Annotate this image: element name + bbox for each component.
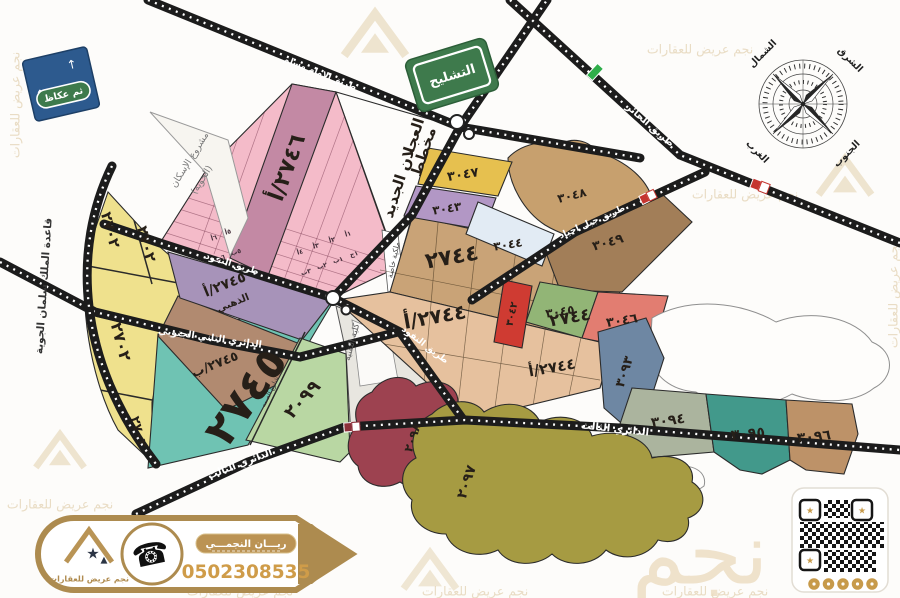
qr-finder: ★ [800,550,820,570]
roundabout [326,291,340,305]
svg-text:★: ★ [806,557,814,567]
qr-modules [824,550,876,572]
qr-modules [800,522,884,548]
compass-east-label: الشرق [835,45,865,75]
road-label-hair: طريق الحائر [623,101,676,149]
bridge-marker [344,422,361,432]
svg-text:★: ★ [858,507,866,517]
qr-modules [824,500,850,518]
qr-social-icons [808,578,879,591]
watermark-text: نجم عريض للعقارات [647,42,753,58]
map-canvas: نجم عريض للعقارات نجم عريض للعقارات نجم … [0,0,900,598]
roundabout [450,115,464,129]
watermark-text: نجم عريض للعقارات [8,52,24,158]
brand-triangle-icon: ▲ [101,556,108,566]
footer-banner: ☎ ريـــان النجمـــي 0502308535 ★ ▲ نجم ع… [38,518,352,590]
roundabout [342,306,351,315]
tashlih-sign: التشليح [404,37,500,113]
okaz-sign: ↑ ↑ ثم عكاظ [22,46,100,121]
watermark-logo-icon [819,159,872,195]
watermark-text: نجم عريض للعقارات [7,497,113,513]
qr-finder: ★ [800,500,820,520]
zones-layer [85,76,890,563]
map-page: نجم عريض للعقارات نجم عريض للعقارات نجم … [0,0,900,598]
phone-number[interactable]: 0502308535 [182,562,311,583]
compass-rose: الشمال الشرق الغرب الجنوب [743,38,864,170]
watermark-logo-icon [404,553,457,589]
agent-name: ريـــان النجمـــي [205,539,286,550]
roundabout [464,129,474,139]
compass-west-label: الغرب [743,138,770,165]
watermark-logo-icon [344,14,406,56]
qr-card[interactable]: ★ ★ ★ [792,488,888,592]
brand-name: نجم عريض للعقارات [49,575,129,585]
watermark-text: نجم عريض للعقارات [886,242,900,348]
brand-star-icon: ★ [86,545,99,563]
qr-finder: ★ [852,500,872,520]
svg-text:★: ★ [806,507,814,517]
watermark-logo-icon [36,434,84,467]
unlabeled-blob [650,304,890,406]
